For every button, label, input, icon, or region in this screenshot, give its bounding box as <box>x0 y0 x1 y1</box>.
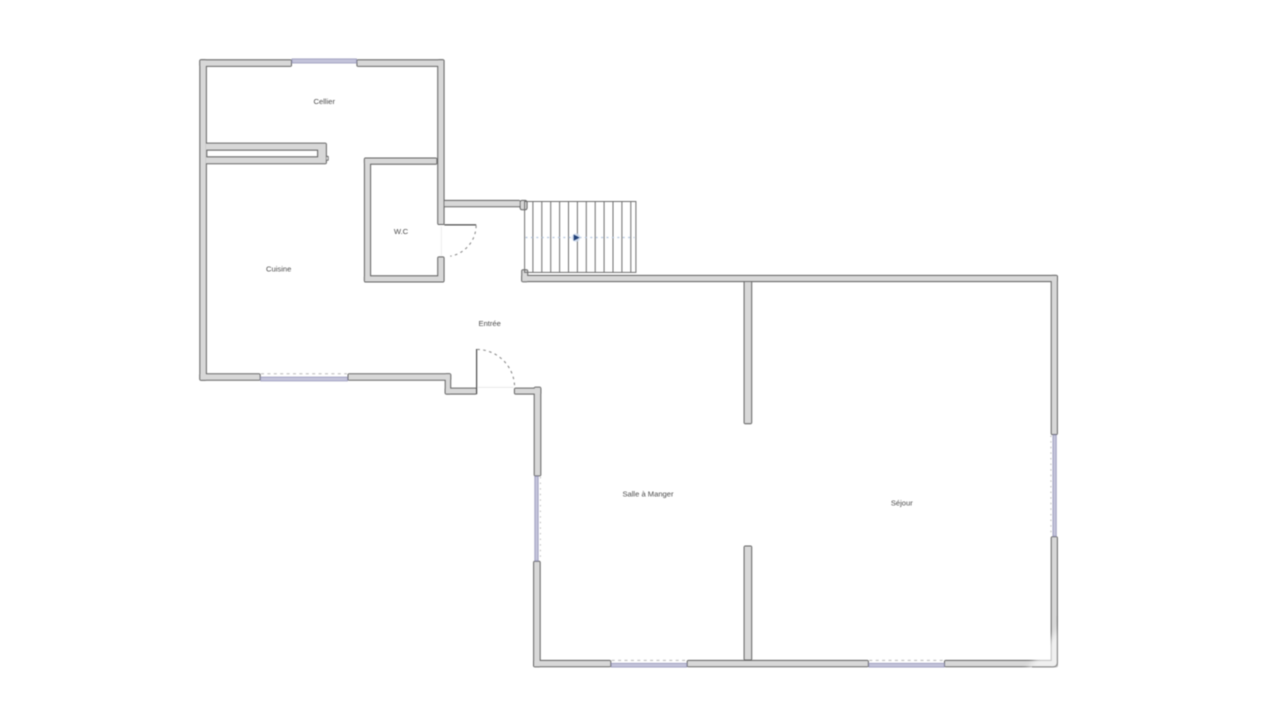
svg-text:W.C: W.C <box>394 227 409 236</box>
svg-text:Entrée: Entrée <box>479 319 501 328</box>
svg-text:Cellier: Cellier <box>314 97 336 106</box>
svg-text:Séjour: Séjour <box>891 498 913 507</box>
svg-text:Salle à Manger: Salle à Manger <box>622 489 674 498</box>
svg-text:Cuisine: Cuisine <box>266 264 291 273</box>
